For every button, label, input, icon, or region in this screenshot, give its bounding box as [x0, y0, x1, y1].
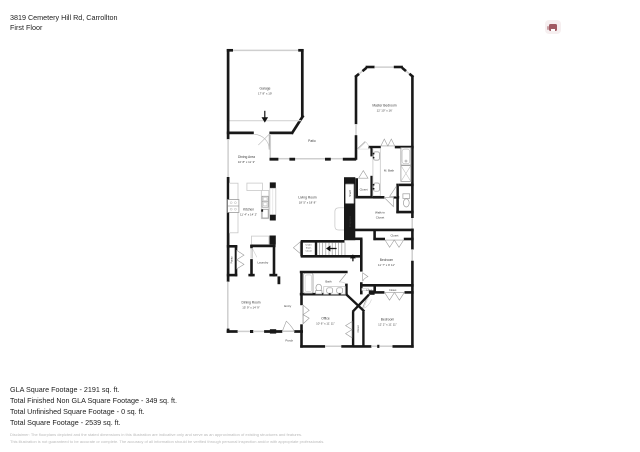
svg-text:Bedroom: Bedroom	[381, 318, 395, 322]
svg-text:Laundry: Laundry	[257, 261, 268, 265]
svg-text:Kitchen: Kitchen	[243, 208, 254, 212]
svg-text:Office: Office	[321, 317, 330, 321]
svg-text:Bath: Bath	[325, 279, 332, 283]
svg-text:Walk-in: Walk-in	[375, 211, 385, 215]
svg-text:Pantry: Pantry	[230, 256, 233, 264]
svg-text:Dining Room: Dining Room	[241, 301, 260, 305]
svg-text:Closet: Closet	[360, 187, 368, 191]
svg-text:Entry: Entry	[284, 304, 292, 308]
svg-text:Bedroom: Bedroom	[380, 258, 394, 262]
svg-text:Closet: Closet	[357, 325, 360, 332]
svg-text:10' 6" x 11' 11": 10' 6" x 11' 11"	[316, 322, 335, 326]
svg-text:Closet: Closet	[305, 250, 312, 253]
svg-text:Closet: Closet	[391, 233, 399, 237]
svg-text:Closet: Closet	[376, 216, 385, 220]
svg-text:Porch: Porch	[285, 339, 293, 343]
svg-text:15' 9" x 14' 9": 15' 9" x 14' 9"	[242, 306, 259, 310]
svg-text:Master Bedroom: Master Bedroom	[372, 104, 397, 108]
svg-text:11' 4" x 14' 2": 11' 4" x 14' 2"	[240, 213, 257, 217]
svg-text:Closet: Closet	[389, 288, 397, 292]
svg-text:Under: Under	[306, 244, 312, 247]
svg-text:Patio: Patio	[308, 139, 316, 143]
svg-text:Living Room: Living Room	[298, 196, 317, 200]
svg-text:Dining Area: Dining Area	[238, 155, 255, 159]
svg-text:M. Bath: M. Bath	[384, 168, 395, 172]
svg-text:17' 8" x 19': 17' 8" x 19'	[258, 92, 272, 96]
svg-text:Garage: Garage	[260, 87, 271, 91]
svg-text:Linen: Linen	[366, 289, 373, 292]
svg-text:Fireplace: Fireplace	[348, 215, 352, 227]
svg-text:12' 10" x 16': 12' 10" x 16'	[377, 109, 393, 113]
svg-text:10' 8" x 11' 3": 10' 8" x 11' 3"	[238, 160, 255, 164]
svg-text:Stairs: Stairs	[306, 247, 312, 250]
svg-text:Shelf: Shelf	[348, 190, 352, 197]
svg-text:18' 5" x 18' 8": 18' 5" x 18' 8"	[299, 201, 316, 205]
svg-text:12' 2" x 11' 11": 12' 2" x 11' 11"	[378, 323, 397, 327]
svg-text:11' 7" x 9' 11": 11' 7" x 9' 11"	[378, 263, 395, 267]
